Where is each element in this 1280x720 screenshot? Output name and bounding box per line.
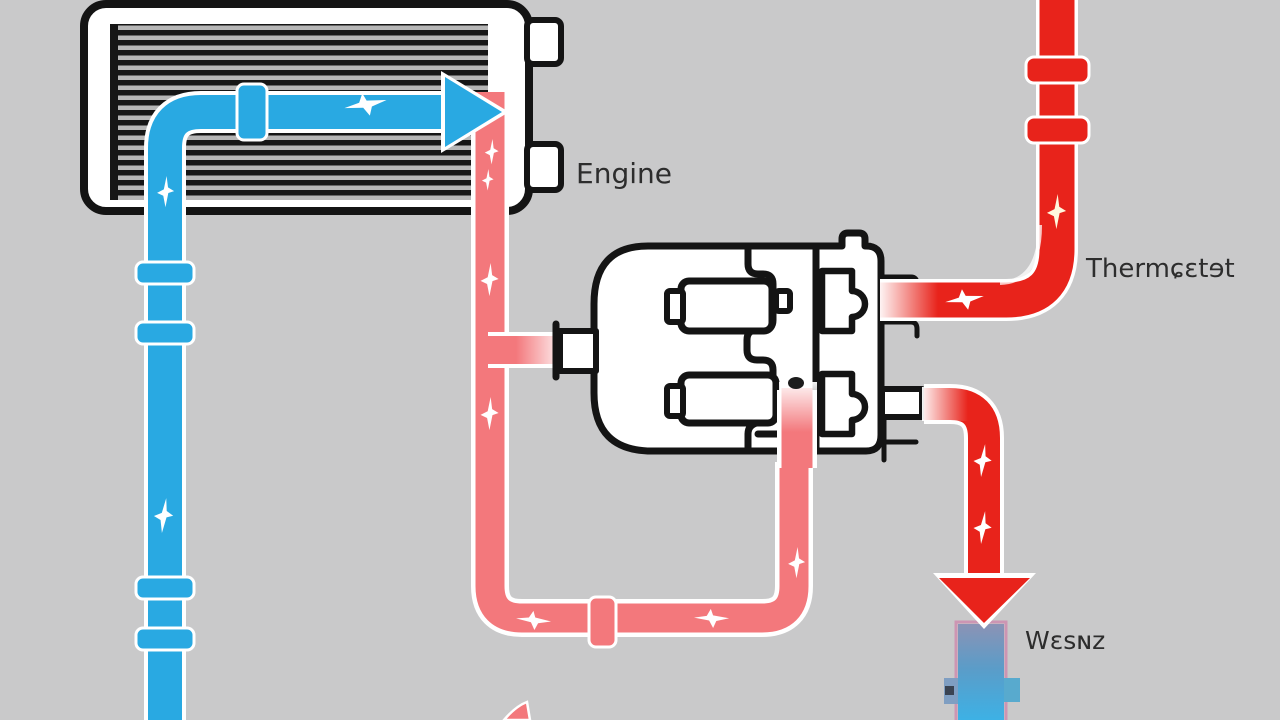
hot-pipe-coupler: [1026, 57, 1089, 83]
hot-pipe-top-fade: [880, 281, 938, 319]
cooling-system-diagram: Engine Thermɕɛtɘt Wɛsɴz: [0, 0, 1280, 720]
cold-pipe-coupler: [237, 84, 267, 140]
engine-cylinder-top: [681, 281, 772, 331]
pump-bolt: [945, 686, 954, 695]
engine-cylinder-bottom: [681, 375, 776, 423]
warm-pipe-coupler: [589, 597, 616, 647]
cold-pipe-coupler: [136, 577, 194, 599]
pump-body: [958, 624, 1004, 720]
radiator-core-edge: [110, 24, 118, 200]
cold-pipe-coupler: [136, 322, 194, 344]
thermostat-label: Thermɕɛtɘt: [1085, 254, 1235, 284]
engine-cylinder-bottom-cap: [667, 386, 683, 416]
radiator-port-top: [527, 20, 561, 64]
engine-cylinder-top-stub: [776, 291, 790, 311]
engine-left-port: [560, 331, 596, 371]
cold-pipe-coupler: [136, 262, 194, 284]
pump-tab-right: [1002, 678, 1020, 702]
diagram-canvas: Engine Thermɕɛtɘt Wɛsɴz: [0, 0, 1280, 720]
riser-fade: [779, 382, 817, 432]
engine-right-port-bottom: [882, 389, 922, 417]
hot-pipe-coupler: [1026, 117, 1089, 143]
riser-fitting-dot: [788, 377, 804, 389]
engine-block: [556, 233, 922, 460]
engine-label: Engine: [576, 157, 672, 190]
hot-pipe-bottom-fade: [922, 387, 968, 421]
engine-cylinder-top-cap: [667, 291, 683, 322]
radiator-port-bottom: [527, 144, 561, 190]
pump-label: Wɛsɴz: [1025, 626, 1105, 655]
cold-pipe-coupler: [136, 628, 194, 650]
